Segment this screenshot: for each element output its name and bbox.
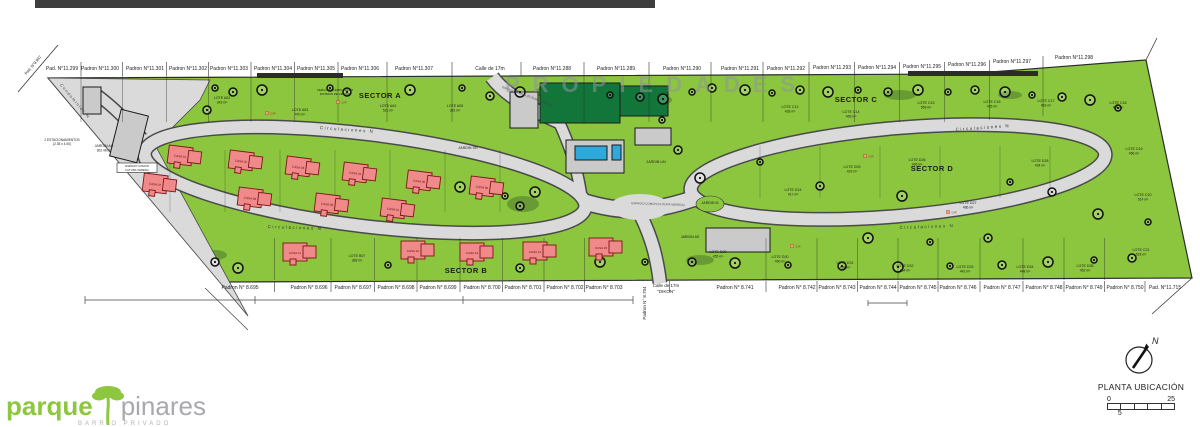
lot-label: LOTE D35 — [1077, 264, 1094, 268]
padron-label: Padron N° 8.704 — [642, 286, 647, 320]
lot-area-label: 469 m² — [846, 115, 857, 119]
tree-icon — [257, 85, 267, 95]
lot-area-label: 448 m² — [1020, 270, 1031, 274]
lot-area-label: 438 m² — [840, 266, 851, 270]
tree-icon — [642, 259, 648, 265]
padron-label: Padron N°11.302 — [169, 66, 207, 72]
cap-label: CAP — [868, 155, 874, 159]
padron-label: Padron N° 8.742 — [778, 285, 815, 291]
lot-area-label: 423 m² — [847, 170, 858, 174]
tree-icon — [998, 261, 1006, 269]
tree-icon — [971, 86, 979, 94]
lot-label: LOTE D26 — [909, 158, 926, 162]
scale-bar: 0 25 5 — [1107, 396, 1175, 410]
lot-area-label: 383 m² — [352, 259, 363, 263]
lot-area-label: 514 m² — [1138, 198, 1149, 202]
tree-icon — [659, 117, 665, 123]
padron-label: Padron N° 8.698 — [377, 285, 414, 291]
padron-label: Padron N°11.293 — [813, 65, 851, 71]
lot-area-label: 490 m² — [775, 260, 786, 264]
lot-label: LOTE D29 — [710, 250, 727, 254]
lot-area-label: 442 m² — [960, 270, 971, 274]
tree-icon — [1085, 95, 1095, 105]
street-label: "DIKON" — [657, 289, 675, 294]
padron-label: Padron N° 8.748 — [1025, 285, 1062, 291]
lot-label: LOTE D34 — [1017, 265, 1034, 269]
padron-label: Padron N°11.288 — [533, 66, 571, 72]
padron-label: Padron N° 8.745 — [899, 285, 936, 291]
tree-icon — [1029, 92, 1035, 98]
tree-icon — [730, 258, 740, 268]
padron-label: Padron N° 8.749 — [1065, 285, 1102, 291]
padron-label: Padron N° 8.701 — [504, 285, 541, 291]
padron-label: Padron N° 8.699 — [419, 285, 456, 291]
padron-label: Padron N°11.300 — [81, 66, 119, 72]
lot-area-label: 434 m² — [1035, 164, 1046, 168]
tree-icon — [211, 258, 219, 266]
lot-area-label: 428 m² — [785, 110, 796, 114]
lot-label: LOTE A03 — [292, 108, 309, 112]
tree-icon — [897, 191, 907, 201]
se-boundary-extension — [1152, 278, 1192, 314]
tree-icon — [502, 193, 508, 199]
lot-label: LOTE A05 — [447, 104, 464, 108]
lot-area-label: 417 m² — [788, 193, 799, 197]
tree-icon — [884, 88, 892, 96]
lot-label: LOTE D25 — [844, 165, 861, 169]
tree-icon — [229, 88, 237, 96]
lot-area-label: 453 m² — [1041, 104, 1052, 108]
tree-icon — [823, 87, 833, 97]
padron-label: Padron N°11.307 — [395, 66, 433, 72]
padron-label: Pad. N°11.299 — [46, 66, 78, 72]
padron-label: Padron N°11.294 — [858, 65, 896, 71]
lot-label: LOTE A04 — [380, 104, 397, 108]
scale-zero: 0 — [1107, 396, 1111, 403]
padron-label: Calle de 17m — [475, 66, 504, 72]
lot-area-label: 455 m² — [713, 255, 724, 259]
padron-label: Pad. N°9.947 — [23, 54, 43, 76]
tree-icon — [945, 89, 951, 95]
tree-icon — [405, 85, 415, 95]
dimension-lines — [85, 288, 907, 330]
tree-icon — [695, 173, 705, 183]
lot-label: LOTE C20 — [1135, 193, 1152, 197]
tree-icon — [863, 233, 873, 243]
house-label: CASA 15 — [595, 246, 608, 250]
lot-area-label: 456 m² — [1129, 152, 1140, 156]
padron-label: Padron N° 8.743 — [818, 285, 855, 291]
fence-segment — [908, 71, 1038, 76]
tree-icon — [984, 234, 992, 242]
tree-icon — [1043, 257, 1053, 267]
tree-icon — [486, 92, 494, 100]
site-plan-page: PROPIEDADES — [0, 0, 1200, 427]
padron-label: Padron N° 8.703 — [585, 285, 622, 291]
tree-icon — [785, 262, 791, 268]
tree-icon — [855, 87, 861, 93]
tree-icon — [1000, 87, 1010, 97]
tree-icon — [1048, 188, 1056, 196]
garden-label: JARDIN UN — [646, 160, 666, 164]
garden-area-label: 302.46 m² — [97, 149, 113, 153]
fence-note: DIVISION DE VECINO — [320, 92, 351, 96]
tree-icon — [516, 264, 524, 272]
logo-subtitle: BARRIO PRIVADO — [78, 421, 206, 427]
kids-pool — [612, 145, 621, 160]
lot-label: LOTE A02 — [214, 96, 231, 100]
tree-icon — [913, 85, 923, 95]
padron-label: Padron N°11.292 — [767, 66, 805, 72]
lot-label: LOTE C19 — [1126, 147, 1143, 151]
padron-label: Padron N°11.306 — [341, 66, 379, 72]
padron-label: Padron N°11.305 — [297, 66, 335, 72]
tree-icon — [658, 94, 668, 104]
tree-icon — [796, 86, 804, 94]
tree-icon — [708, 84, 716, 92]
house-label: CASA 11 — [289, 251, 301, 255]
sector-label: SECTOR B — [445, 266, 488, 275]
cap-label: CAP — [341, 101, 347, 105]
padron-label: Padron N° 8.700 — [463, 285, 500, 291]
tree-icon — [203, 106, 211, 114]
house-label: CASA 14 — [529, 250, 542, 254]
padron-label: Padron N°11.304 — [254, 66, 292, 72]
lot-label: LOTE B07 — [349, 254, 366, 258]
tree-icon — [674, 146, 682, 154]
padron-label: Padron N° 8.696 — [290, 285, 327, 291]
tree-icon — [212, 85, 218, 91]
lot-label: LOTE D31 — [837, 261, 854, 265]
parking-note: (2.35 x 4.50) — [53, 142, 71, 146]
padron-label: Padron N°11.297 — [993, 59, 1031, 65]
garden-label: JARDIN SH — [459, 146, 478, 150]
lot-label: LOTE C12 — [782, 105, 799, 109]
padron-label: Padron N° 8.750 — [1106, 285, 1143, 291]
padron-label: Pad. N°11.715 — [1149, 285, 1181, 291]
padron-label: Padron N° 8.741 — [716, 285, 753, 291]
padron-label: Padron N°11.290 — [663, 66, 701, 72]
scale-max: 25 — [1167, 396, 1175, 403]
site-plan-svg: CASA 01CASA 02CASA 03CASA 04CASA 05CASA … — [0, 0, 1200, 427]
tree-icon — [516, 202, 524, 210]
tree-icon — [757, 159, 763, 165]
tree-icon — [455, 182, 465, 192]
tree-icon — [1058, 93, 1066, 101]
lot-label: LOTE C21 — [1133, 248, 1150, 252]
tree-icon — [740, 85, 750, 95]
lot-label: LOTE D30 — [772, 255, 789, 259]
padron-label: Padron N°11.301 — [126, 66, 164, 72]
tree-icon — [816, 182, 824, 190]
cap-label: CAP — [270, 112, 276, 116]
padron-label: Padron N°11.296 — [948, 62, 986, 68]
tree-icon — [688, 258, 696, 266]
scale-mid: 5 — [1118, 410, 1122, 417]
lot-area-label: 518 m² — [1136, 253, 1147, 257]
top-redaction-bar — [35, 0, 655, 8]
tree-icon — [927, 239, 933, 245]
logo: parque pinares BARRIO PRIVADO — [6, 383, 206, 427]
legend: N PLANTA UBICACIÓN 0 25 5 — [1096, 334, 1186, 410]
lot-area-label: 452 m² — [1080, 269, 1091, 273]
cap-label: CAP — [795, 245, 801, 249]
house-label: CASA 13 — [466, 251, 479, 255]
swimming-pool — [575, 146, 607, 160]
padron-label: Padron N°11.298 — [1055, 55, 1093, 61]
lot-area-label: 343 m² — [217, 101, 228, 105]
lot-label: LOTE C18 — [1110, 101, 1127, 105]
padron-label: Padron N° 8.744 — [859, 285, 896, 291]
garden-label: JARDIN AC — [95, 144, 114, 148]
padron-label: Padron N° 8.747 — [983, 285, 1020, 291]
lot-area-label: 521 m² — [383, 109, 394, 113]
road-junction — [610, 194, 670, 220]
tree-icon — [1145, 219, 1151, 225]
cap-label: CAP — [951, 211, 957, 215]
gym-building — [635, 128, 671, 145]
lot-label: LOTE D28 — [1032, 159, 1049, 163]
maintenance-building — [706, 228, 770, 252]
lot-area-label: 486 m² — [963, 206, 974, 210]
tree-icon — [636, 93, 644, 101]
tree-icon — [530, 187, 540, 197]
garden-label: JARDIN M — [702, 201, 719, 205]
tree-icon — [1007, 179, 1013, 185]
fence-segment — [257, 73, 343, 78]
tree-icon — [947, 263, 953, 269]
garden-label: JARDIN AS — [681, 235, 700, 239]
house-label: CASA 12 — [407, 249, 420, 253]
lot-label: LOTE D32 — [897, 264, 914, 268]
lot-label: LOTE C16 — [984, 100, 1001, 104]
lot-label: LOTE C14 — [843, 110, 860, 114]
padron-label: Padron N° 8.702 — [546, 285, 583, 291]
padron-label: Padron N° 8.746 — [939, 285, 976, 291]
lot-area-label: 559 m² — [921, 106, 932, 110]
legend-title: PLANTA UBICACIÓN — [1096, 382, 1186, 392]
padron-label: Padron N°11.291 — [721, 66, 759, 72]
compass-icon: N — [1119, 334, 1163, 378]
sector-label: SECTOR C — [835, 95, 878, 104]
scale-bar-cells — [1107, 403, 1175, 410]
sector-label: SECTOR A — [359, 91, 401, 100]
lot-label: LOTE C17 — [1038, 99, 1055, 103]
ne-boundary-extension — [1146, 38, 1157, 60]
north-label: N — [1152, 336, 1159, 346]
padron-label: Padron N° 8.695 — [221, 285, 258, 291]
compass: N — [1119, 334, 1163, 378]
espacio-comun-label: FUTURA VEREDA — [125, 168, 149, 172]
lot-label: LOTE D24 — [785, 188, 802, 192]
tree-icon — [1091, 257, 1097, 263]
lot-area-label: 470 m² — [295, 113, 306, 117]
tree-icon — [233, 263, 243, 273]
lot-area-label: 381 m² — [450, 109, 461, 113]
padron-label: Padron N° 8.697 — [334, 285, 371, 291]
tree-icon — [769, 90, 775, 96]
tree-icon — [1093, 209, 1103, 219]
tree-icon — [459, 85, 465, 91]
tree-icon — [385, 262, 391, 268]
padron-label: Padron N°11.295 — [903, 64, 941, 70]
tree-icon — [607, 92, 613, 98]
logo-pinares: pinares — [121, 393, 206, 419]
padron-label: Padron N°11.303 — [210, 66, 248, 72]
logo-parque: parque — [6, 393, 93, 419]
lot-area-label: 464 m² — [900, 269, 911, 273]
lot-label: LOTE D27 — [960, 201, 977, 205]
lot-label: LOTE C15 — [918, 101, 935, 105]
lot-area-label: 480 m² — [1113, 106, 1124, 110]
tree-icon — [689, 89, 695, 95]
padron-label: Padron N°11.289 — [597, 66, 635, 72]
lot-area-label: 435 m² — [987, 105, 998, 109]
lot-area-label: 436 m² — [912, 163, 923, 167]
lot-label: LOTE D33 — [957, 265, 974, 269]
street-label: Calle de 17m — [653, 283, 680, 288]
